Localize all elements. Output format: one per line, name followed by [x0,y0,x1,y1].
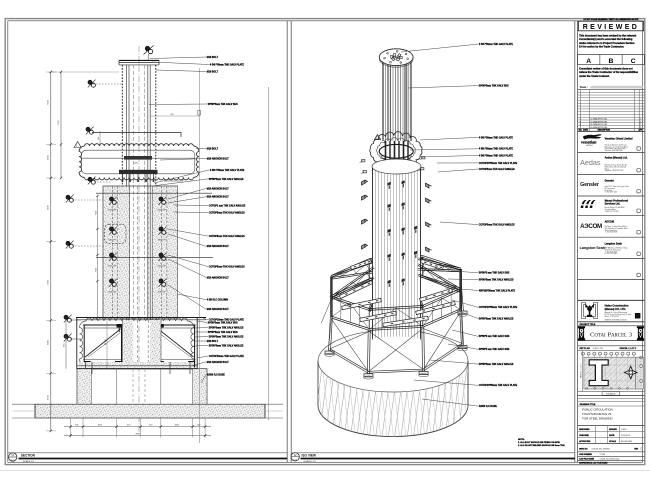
svg-text:7500: 7500 [96,211,98,215]
svg-text:C1: C1 [639,127,641,129]
svg-text:SCALE 1:5: SCALE 1:5 [23,460,35,463]
svg-text:Consultants(s) and is accorded: Consultants(s) and is accorded the follo… [579,38,633,41]
svg-text:SECTION: SECTION [21,454,36,458]
svg-text:50*50*5mm THK GALV ANGLES: 50*50*5mm THK GALV ANGLES [209,335,244,338]
svg-text:7500 TYP: 7500 TYP [108,240,117,242]
svg-text:COTAI PARCEL 3: COTAI PARCEL 3 [590,331,633,338]
svg-text:Aedas (Macau) Ltd.: Aedas (Macau) Ltd. [605,157,628,160]
svg-text:4 545 *50mm THK GALV PLATE: 4 545 *50mm THK GALV PLATE [210,63,245,66]
svg-text:89 Queensway: 89 Queensway [605,188,615,190]
svg-text:50*50*5mm THK GALV ANGLES: 50*50*5mm THK GALV ANGLES [209,326,244,329]
svg-text:ISO VIEW: ISO VIEW [302,454,317,458]
svg-text:T: +852 3922 9000: T: +852 3922 9000 [605,232,618,234]
svg-text:Venetian Orient Limited: Venetian Orient Limited [605,138,633,141]
svg-text:Consultant review of this docu: Consultant review of this document does … [579,67,633,70]
svg-text:COTOP5mm THK GALV ANGLES: COTOP5mm THK GALV ANGLES [209,266,245,269]
svg-text:Aedas: Aedas [580,158,601,167]
svg-text:AS SHOWN: AS SHOWN [621,440,632,443]
svg-text:Langdon Seah: Langdon Seah [605,243,623,246]
svg-text:COTOP10mm THK GALV PLATE: COTOP10mm THK GALV PLATE [209,355,244,358]
svg-text:50*50*5mm THK GALV ANGLES: 50*50*5mm THK GALV ANGLES [209,178,244,181]
svg-text:REVIEWED: REVIEWED [583,24,640,31]
svg-text:50*50*5 mm THK GALV SHS: 50*50*5 mm THK GALV SHS [479,348,510,351]
svg-text:JOB NUMBER: JOB NUMBER [579,454,592,456]
svg-text:C: C [631,58,636,65]
svg-text:4 545 *50mm THK GALV PLATE: 4 545 *50mm THK GALV PLATE [479,154,514,157]
svg-text:FOR STEEL DRAWING: FOR STEEL DRAWING [582,416,613,420]
svg-text:40 500: 40 500 [105,339,107,345]
svg-text:5152B_FD_B5090: 5152B_FD_B5090 [592,448,611,450]
svg-text:Hong Kong: Hong Kong [605,190,613,192]
svg-text:COTOP5mm THK GALV ANGLES: COTOP5mm THK GALV ANGLES [209,212,245,215]
svg-text:AЭCOM: AЭCOM [580,223,602,230]
svg-text:2. ALL FILLET WELDED SHOULD BE: 2. ALL FILLET WELDED SHOULD BE 3mm THK. [518,444,566,447]
svg-text:M10 ANCHOR BOLT: M10 ANCHOR BOLT [207,308,229,311]
svg-text:14/1/2015: 14/1/2015 [621,435,631,437]
svg-text:M10 ANCHOR BOLT: M10 ANCHOR BOLT [207,276,229,279]
svg-text:M10 BOLT: M10 BOLT [207,71,219,73]
svg-text:status referred to in Project: status referred to in Project Procedure … [579,42,635,45]
svg-text:M10 ANCHOR BOLT: M10 ANCHOR BOLT [207,187,229,190]
svg-text:NOTE:: NOTE: [518,439,525,441]
svg-text:CHECKED: CHECKED [579,435,589,437]
svg-text:DATE: DATE [609,434,615,437]
svg-text:COTOP10*50mm THK GALV PLATE: COTOP10*50mm THK GALV PLATE [479,384,518,387]
svg-text:4 500 750mm THK GALV PLATE: 4 500 750mm THK GALV PLATE [210,169,245,172]
svg-text:COTOP10mm THK GALV PLATE: COTOP10mm THK GALV PLATE [209,318,244,321]
svg-text:COTOP1 mm THK GALV ANGLES: COTOP1 mm THK GALV ANGLES [209,205,246,208]
svg-text:M10 ANCHOR BOLT: M10 ANCHOR BOLT [207,196,229,199]
svg-text:DO NOT SCALE DRAWINGS. VERIFY: DO NOT SCALE DRAWINGS. VERIFY ALL DIMENS… [584,18,640,21]
svg-text:(Macau) CO. LTD.: (Macau) CO. LTD. [605,307,627,311]
svg-text:LUND: LUND [621,429,627,431]
svg-text:COTOP10*50mm THK GALV PLATE: COTOP10*50mm THK GALV PLATE [479,306,518,309]
svg-text:COTOP5mm THK GALV ANGLES: COTOP5mm THK GALV ANGLES [479,224,515,227]
svg-text:7500 TYP: 7500 TYP [108,292,117,294]
svg-text:5152B: 5152B [600,454,606,456]
svg-text:4 545 *50mm THK GALV PLATE: 4 545 *50mm THK GALV PLATE [479,43,514,46]
svg-text:SCALE 1:10: SCALE 1:10 [304,460,317,463]
svg-text:CAD FILE NAME: CAD FILE NAME [579,457,595,460]
svg-text:FOR APPROVAL: FOR APPROVAL [594,123,608,126]
svg-text:450*100*50mm THK GALV PLATE: 450*100*50mm THK GALV PLATE [479,289,516,292]
svg-text:COTOP5mm THK GALV ANGLES: COTOP5mm THK GALV ANGLES [209,235,245,238]
svg-text:M10 BOLT: M10 BOLT [207,57,219,59]
svg-text:relieve the Trade Contractor o: relieve the Trade Contractor of its resp… [579,71,639,74]
svg-text:Services Ltd.: Services Ltd. [605,202,621,205]
svg-text:50*50*5mm THK GALV SHS: 50*50*5mm THK GALV SHS [208,321,238,324]
svg-text:M10 ANCHOR BOLT: M10 ANCHOR BOLT [207,158,229,161]
svg-text:Macau: Macau [605,168,610,170]
svg-text:7500 TYP: 7500 TYP [108,266,117,268]
svg-text:PARCEL 1, LOT 2: PARCEL 1, LOT 2 [579,364,582,378]
svg-text:This document has been revised: This document has been revised by the re… [579,34,636,37]
svg-text:FOR APPROVAL: FOR APPROVAL [594,118,608,121]
svg-text:SCALE: SCALE [609,440,616,443]
svg-text:XREFERENCE CAD FILE NAME: XREFERENCE CAD FILE NAME [579,461,608,464]
svg-text:Telephone: (853) 2833 1027: Telephone: (853) 2833 1027 [605,170,624,172]
svg-text:AECOM: AECOM [605,221,614,224]
svg-text:5.4 for action by the Trade Co: 5.4 for action by the Trade Contractor. [579,46,624,49]
svg-text:Gensler: Gensler [580,182,600,188]
svg-text:150: 150 [98,137,100,140]
svg-text:Date :: Date : [580,85,588,89]
svg-text:PARCEL 1, LOT 2: PARCEL 1, LOT 2 [620,347,637,350]
svg-text:PUBLIC CIRCULATION: PUBLIC CIRCULATION [582,407,613,411]
svg-text:Gensler: Gensler [605,180,614,183]
svg-text:50*50*5 mm THK GALV SHS: 50*50*5 mm THK GALV SHS [479,272,510,275]
svg-text:50*50*5mm THK GALV ANGLES: 50*50*5mm THK GALV ANGLES [479,363,514,366]
svg-text:4 500 *50mm THK GALV PLATE: 4 500 *50mm THK GALV PLATE [479,148,514,151]
svg-text:COTOP10*50mm THK GALV PLATE: COTOP10*50mm THK GALV PLATE [479,162,518,165]
svg-text:M16 BOLT: M16 BOLT [207,341,219,343]
svg-text:50*50*5mm THK GALV SHS: 50*50*5mm THK GALV SHS [208,103,238,106]
svg-text:50*50*5mm THK GALV SHS: 50*50*5mm THK GALV SHS [479,85,509,88]
svg-text:DWG NO: DWG NO [579,448,588,450]
svg-text:42000 R.C BASE: 42000 R.C BASE [207,374,225,377]
svg-text:FOUNTAIN DETAIL 25: FOUNTAIN DETAIL 25 [582,412,612,416]
svg-text:50*50*5mm THK GALV ANGLES: 50*50*5mm THK GALV ANGLES [479,318,514,321]
svg-text:T: (853) 287 123 456: T: (853) 287 123 456 [605,211,619,213]
svg-text:M10 ANCHOR BOLT: M10 ANCHOR BOLT [207,245,229,248]
svg-text:FOR APPROVAL: FOR APPROVAL [594,120,608,123]
svg-text:KEY PLAN: KEY PLAN [580,347,591,350]
svg-text:Macau, T: 2870 3218: Macau, T: 2870 3218 [605,316,619,318]
svg-text:DRAWN: DRAWN [609,428,617,431]
svg-text:7500 TYP: 7500 TYP [158,210,167,212]
svg-text:C: C [640,447,642,450]
svg-text:M10 ANCHOR BOLT: M10 ANCHOR BOLT [207,361,229,364]
svg-text:venetian: venetian [581,140,597,145]
svg-text:7500 TYP: 7500 TYP [108,210,117,212]
svg-text:7500: 7500 [96,268,98,272]
svg-text:50*50*5mm THK GALV ANGLES: 50*50*5mm THK GALV ANGLES [209,344,244,347]
svg-text:1. ALL BOLT SHOULD BE FIXING O: 1. ALL BOLT SHOULD BE FIXING ON SITE. [518,441,561,444]
svg-text:FOR APPROVAL: FOR APPROVAL [594,126,608,129]
svg-text:50*50*5mm THK GALV SHS: 50*50*5mm THK GALV SHS [208,331,238,334]
svg-text:C1: C1 [639,124,641,126]
svg-text:7500 TYP: 7500 TYP [158,292,167,294]
svg-text:APPROVED: APPROVED [579,440,591,443]
svg-text:50*50*5mm THK GALV ANGLES: 50*50*5mm THK GALV ANGLES [479,279,514,282]
svg-text:7500 TYP: 7500 TYP [158,266,167,268]
svg-text:T: +852 2830 3500: T: +852 2830 3500 [605,251,618,253]
svg-text:50*50*5 mm THK GALV SHS: 50*50*5 mm THK GALV SHS [479,335,510,338]
svg-text:42000 R.C BASE: 42000 R.C BASE [479,405,497,408]
svg-text:A: A [586,58,591,65]
svg-text:C1: C1 [639,119,641,121]
svg-text:M10 BOLT: M10 BOLT [207,148,219,150]
svg-text:COTOP5mm THK GALV ANGLES: COTOP5mm THK GALV ANGLES [479,168,515,171]
svg-text:F: +852 2576 0416: F: +852 2576 0416 [605,253,618,255]
svg-text:7500 TYP: 7500 TYP [158,240,167,242]
svg-text:DRAWING TITLE: DRAWING TITLE [580,403,596,406]
svg-text:DESIGNED: DESIGNED [579,429,590,431]
svg-text:Telephone: (853) 2882 8888: Telephone: (853) 2882 8888 [605,150,623,152]
svg-text:B: B [609,58,614,65]
svg-text:4-M6: 4-M6 [134,163,138,165]
svg-text:4 500 R.C COLUMN: 4 500 R.C COLUMN [207,299,228,302]
svg-text:4 545 *50mm THK GALV PLATE: 4 545 *50mm THK GALV PLATE [479,136,514,139]
svg-text:T: +852 2599 1000: T: +852 2599 1000 [605,192,618,194]
svg-text:C1: C1 [639,121,641,123]
svg-text:Langdon·Seah: Langdon·Seah [580,245,606,250]
svg-text:under the Trade Contract.: under the Trade Contract. [579,75,610,78]
